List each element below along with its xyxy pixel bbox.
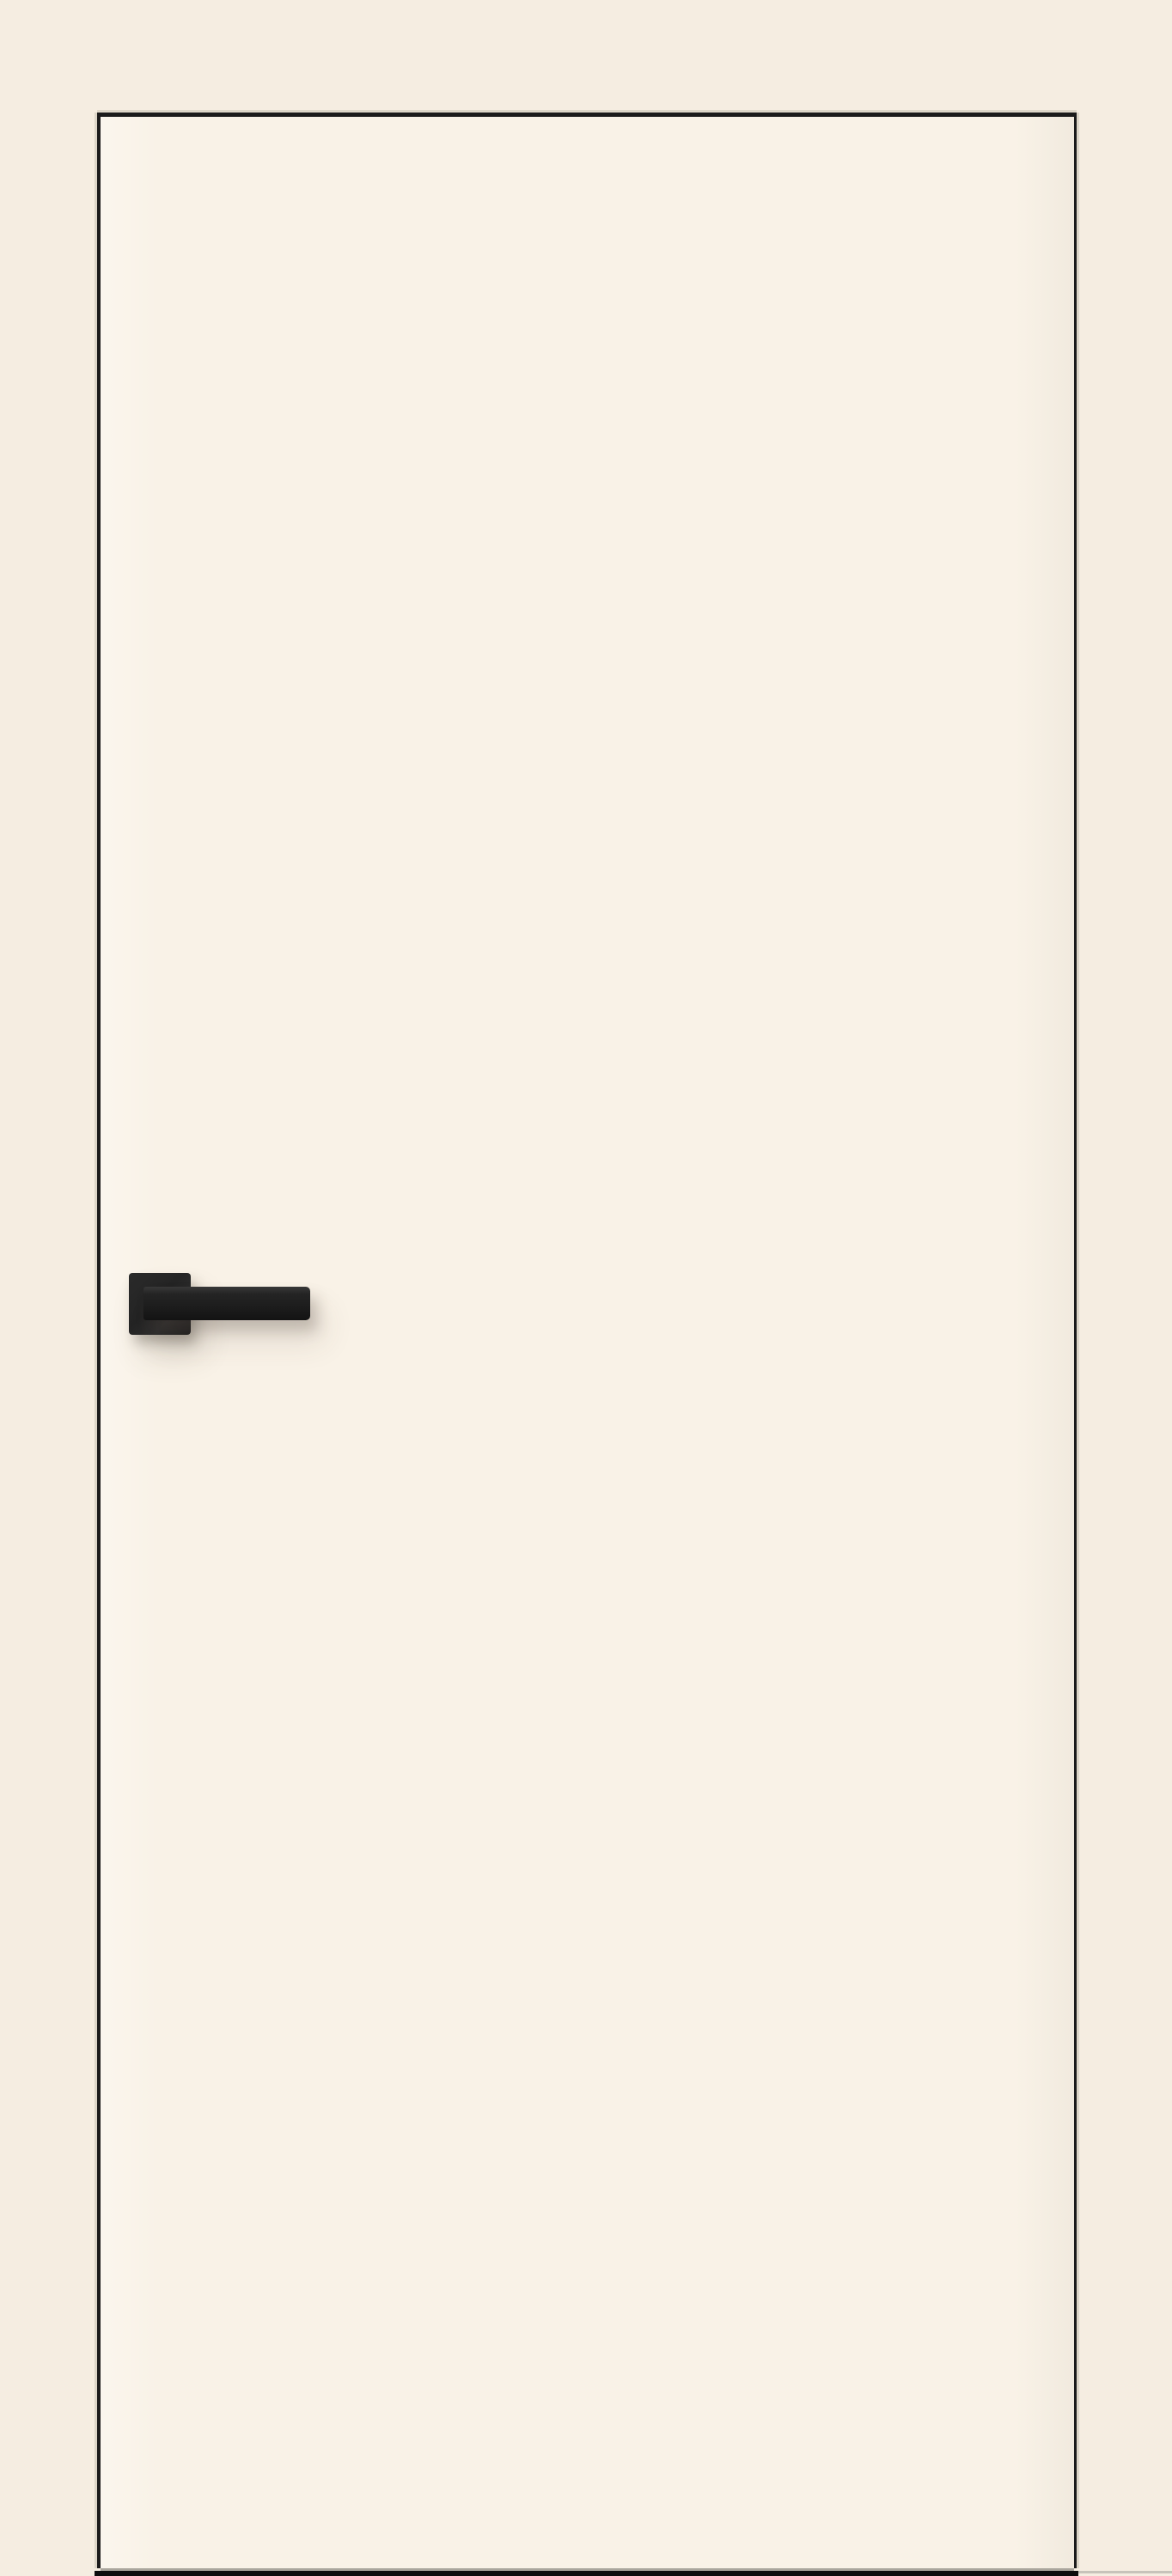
product-photo-door <box>0 0 1172 2576</box>
handle-lever <box>143 1287 310 1320</box>
door-handle <box>129 1273 352 1393</box>
floor-shadow-bar <box>95 2571 1078 2576</box>
floor-line-right <box>1078 2571 1172 2573</box>
